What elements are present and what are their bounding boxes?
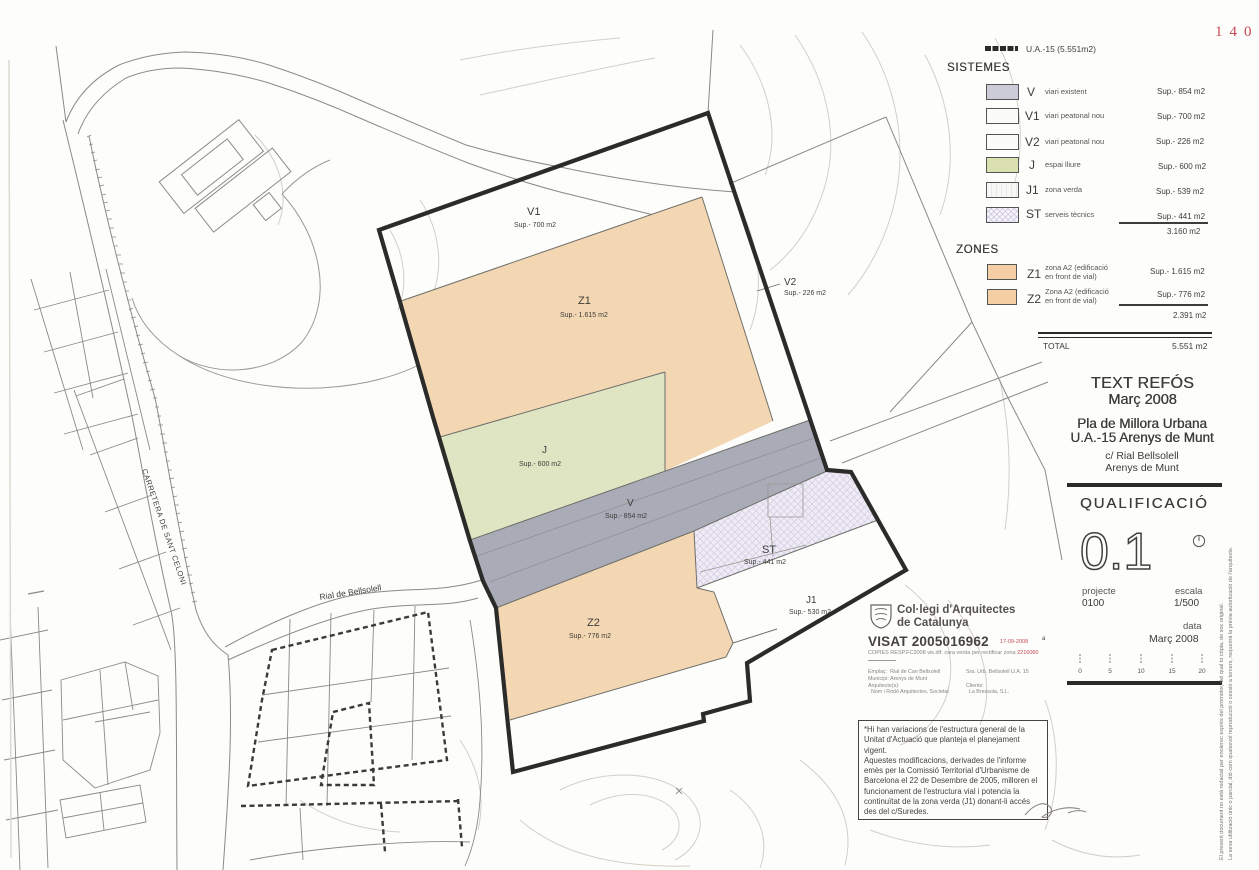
svg-text:Sup.- 1.615 m2: Sup.- 1.615 m2	[560, 312, 608, 319]
svg-text:J: J	[542, 445, 547, 456]
svg-text:J1: J1	[806, 595, 817, 606]
svg-text:5: 5	[1108, 668, 1112, 675]
svg-text:20: 20	[1198, 668, 1206, 675]
svg-text:Z2: Z2	[587, 617, 600, 629]
svg-text:10: 10	[1137, 668, 1145, 675]
svg-text:ST: ST	[762, 544, 776, 556]
svg-text:V1: V1	[527, 206, 540, 218]
svg-text:V: V	[627, 498, 634, 509]
svg-text:Z1: Z1	[578, 295, 591, 307]
svg-text:0: 0	[1078, 668, 1082, 675]
svg-text:CARRETERA DE SANT CELONI: CARRETERA DE SANT CELONI	[140, 468, 188, 587]
svg-text:Rial de Bellsolell: Rial de Bellsolell	[319, 582, 382, 602]
svg-text:Sup.- 854 m2: Sup.- 854 m2	[605, 513, 647, 520]
svg-text:Sup.- 700 m2: Sup.- 700 m2	[514, 222, 556, 229]
svg-text:Sup.- 530 m2: Sup.- 530 m2	[789, 609, 831, 616]
svg-text:Sup.- 441 m2: Sup.- 441 m2	[744, 559, 786, 566]
svg-text:Sup.- 226 m2: Sup.- 226 m2	[784, 290, 826, 297]
svg-text:V2: V2	[784, 277, 797, 288]
svg-text:Sup.- 776 m2: Sup.- 776 m2	[569, 633, 611, 640]
svg-text:Sup.- 600 m2: Sup.- 600 m2	[519, 461, 561, 468]
svg-text:15: 15	[1168, 668, 1176, 675]
